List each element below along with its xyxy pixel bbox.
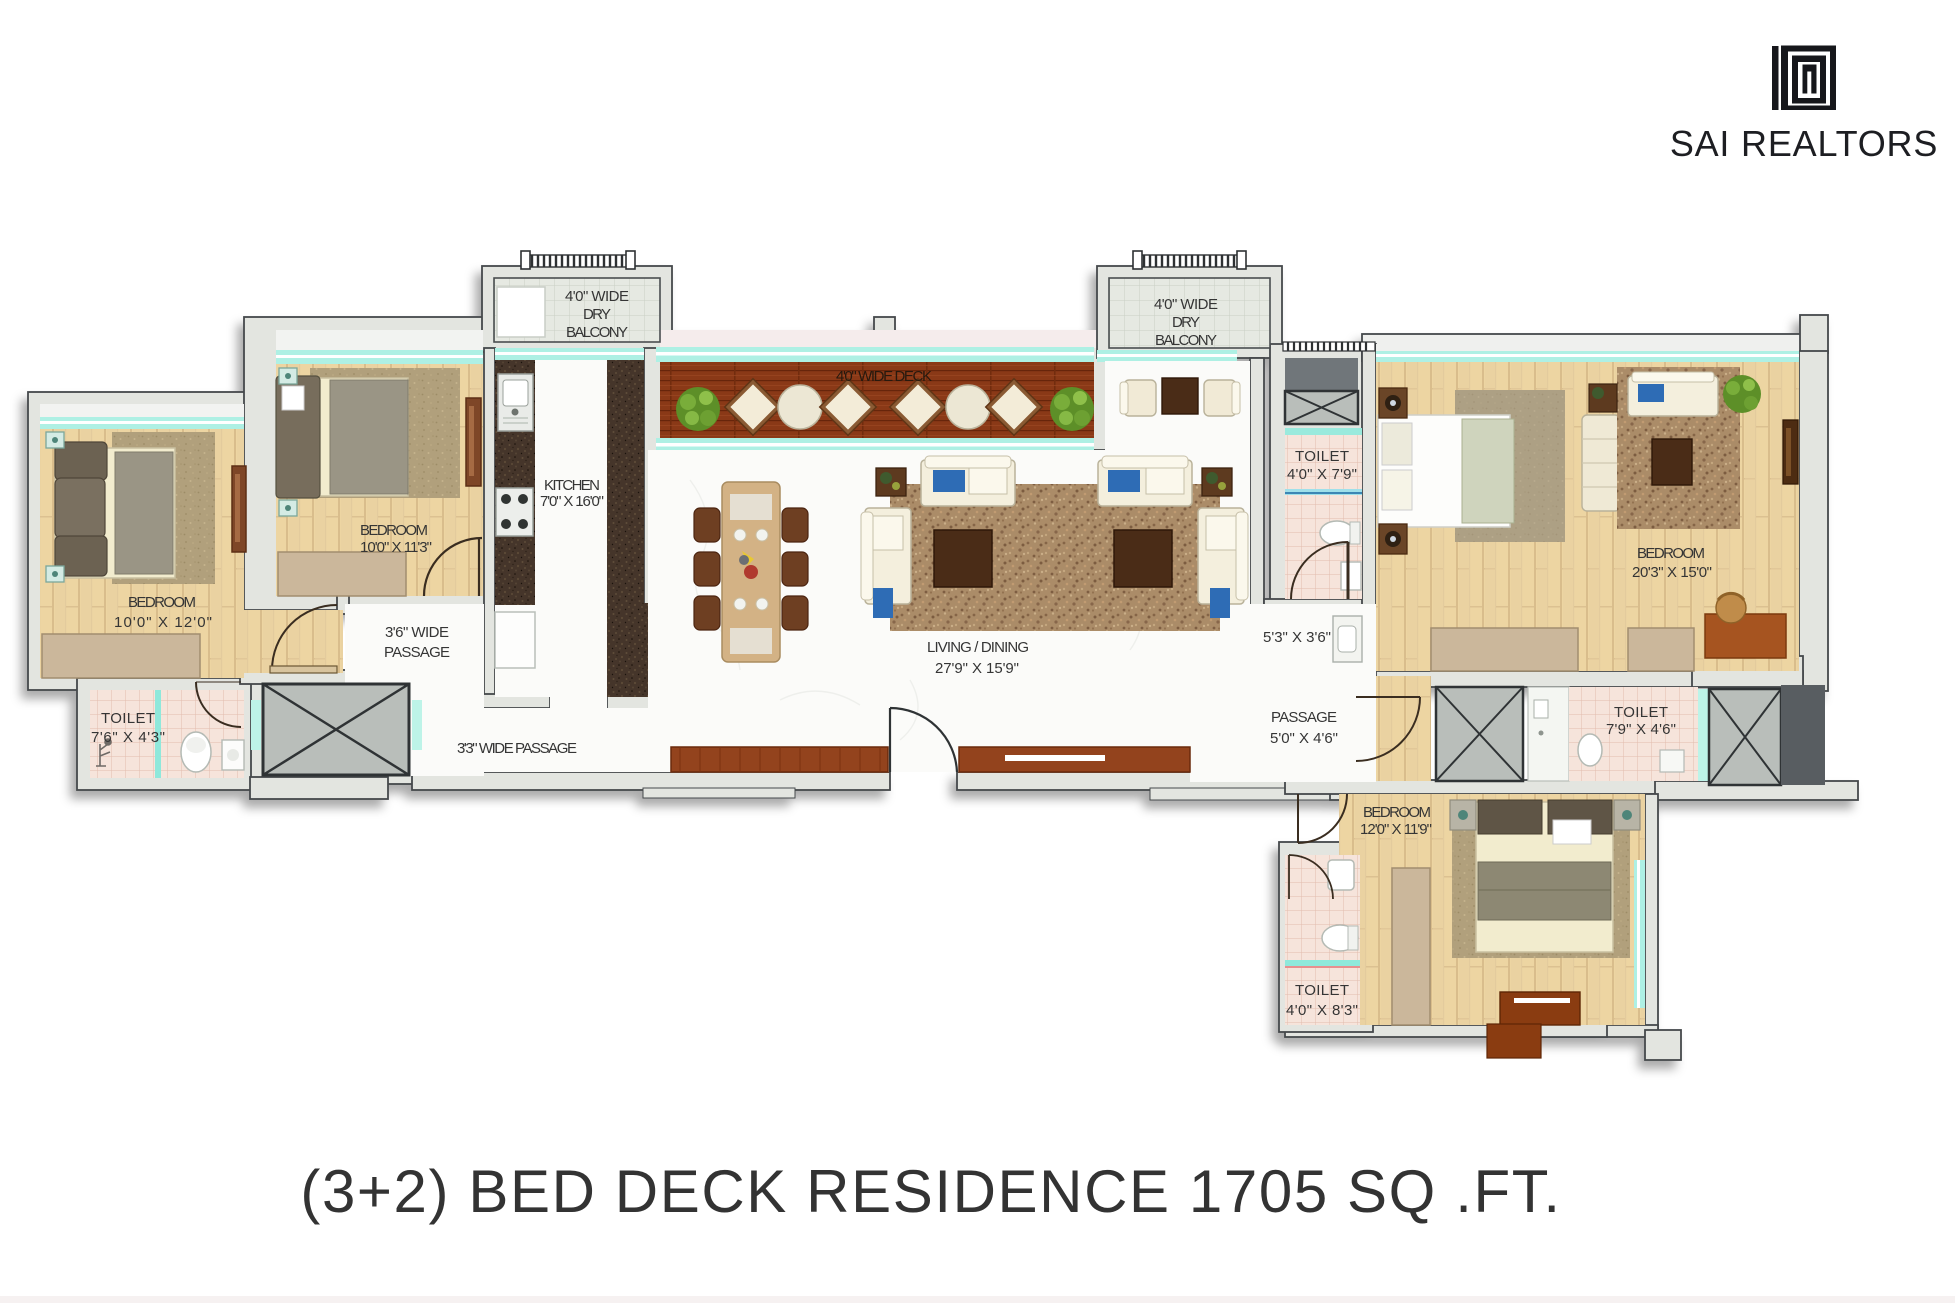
svg-text:SAI REALTORS: SAI REALTORS [1670,123,1938,164]
svg-text:5'3" X 3'6": 5'3" X 3'6" [1263,629,1331,646]
svg-text:PASSAGE: PASSAGE [1271,709,1337,726]
svg-text:4'0" WIDE DECK: 4'0" WIDE DECK [836,368,932,385]
svg-text:BALCONY: BALCONY [566,324,628,341]
svg-text:4'0" X 8'3": 4'0" X 8'3" [1286,1002,1358,1019]
svg-text:3'6" WIDE: 3'6" WIDE [385,624,449,641]
svg-text:10'0" X 11'3": 10'0" X 11'3" [360,539,432,556]
svg-text:KITCHEN: KITCHEN [544,477,600,494]
svg-text:20'3" X 15'0": 20'3" X 15'0" [1632,564,1712,581]
svg-text:10'0" X 12'0": 10'0" X 12'0" [114,614,212,631]
svg-text:4'0" WIDE: 4'0" WIDE [1154,296,1218,313]
svg-text:LIVING / DINING: LIVING / DINING [927,639,1029,656]
svg-text:BEDROOM: BEDROOM [1637,545,1705,562]
svg-text:7'0" X 16'0": 7'0" X 16'0" [540,493,604,510]
svg-text:27'9" X 15'9": 27'9" X 15'9" [935,660,1019,677]
svg-text:TOILET: TOILET [1614,704,1668,721]
svg-text:(3+2) BED DECK RESIDENCE 1705: (3+2) BED DECK RESIDENCE 1705 SQ .FT. [300,1158,1561,1225]
svg-text:12'0" X 11'9": 12'0" X 11'9" [1360,821,1432,838]
svg-text:PASSAGE: PASSAGE [384,644,450,661]
svg-text:DRY: DRY [1172,314,1200,331]
svg-text:4'0" WIDE: 4'0" WIDE [565,288,629,305]
svg-text:BEDROOM: BEDROOM [360,522,428,539]
svg-text:7'9" X 4'6": 7'9" X 4'6" [1606,721,1676,738]
svg-text:DRY: DRY [583,306,611,323]
svg-text:TOILET: TOILET [101,710,155,727]
svg-text:BEDROOM: BEDROOM [128,594,196,611]
svg-text:5'0" X 4'6": 5'0" X 4'6" [1270,730,1338,747]
svg-text:TOILET: TOILET [1295,448,1349,465]
svg-text:BALCONY: BALCONY [1155,332,1217,349]
svg-text:3'3" WIDE PASSAGE: 3'3" WIDE PASSAGE [457,740,577,757]
svg-text:BEDROOM: BEDROOM [1363,804,1431,821]
svg-text:4'0" X 7'9": 4'0" X 7'9" [1287,466,1357,483]
svg-text:TOILET: TOILET [1295,982,1349,999]
svg-text:7'6" X 4'3": 7'6" X 4'3" [91,729,165,746]
